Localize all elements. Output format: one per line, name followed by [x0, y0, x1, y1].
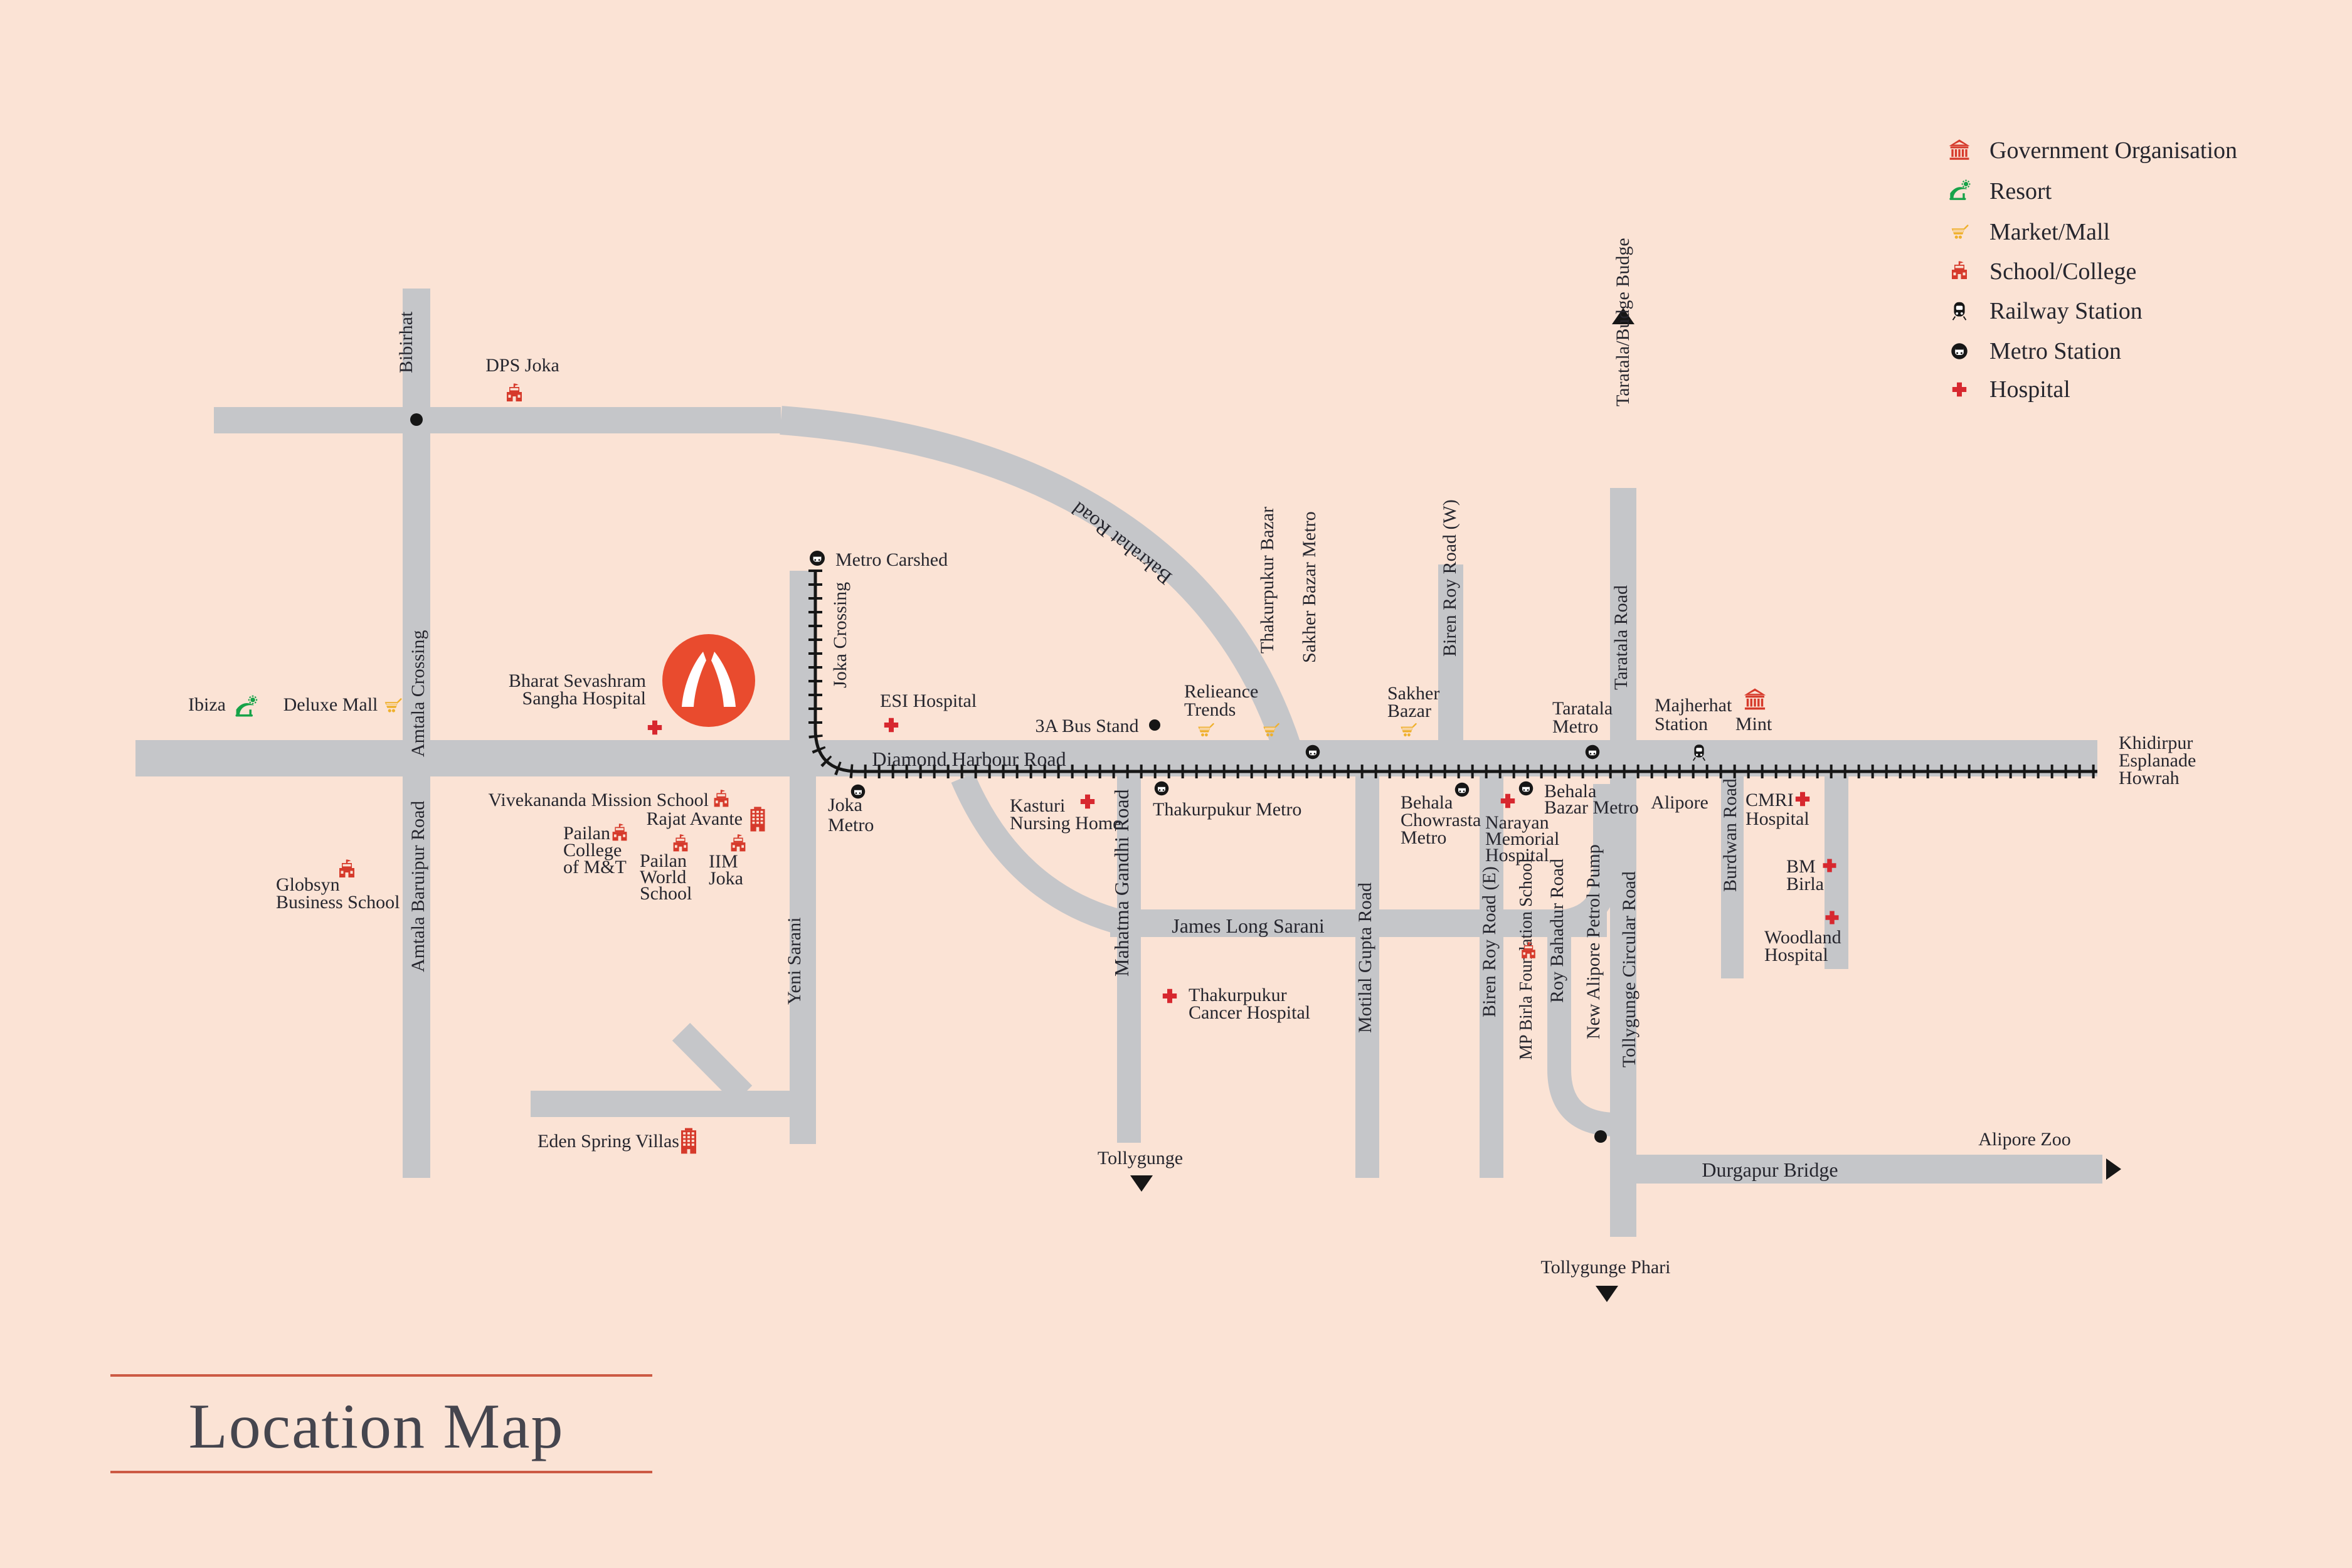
label-line: Cancer Hospital [1189, 1002, 1310, 1023]
label-line: Alipore Zoo [1978, 1129, 2070, 1150]
label-line: Vivekananda Mission School [489, 790, 709, 810]
metro-station-icon [1586, 745, 1600, 760]
label-line: Trends [1184, 699, 1236, 720]
label-thakurpukur-metro: Thakurpukur Metro [1153, 799, 1301, 820]
label-line: Metro [1552, 716, 1598, 737]
label-sakher-bazar-metro: Sakher Bazar Metro [1299, 511, 1320, 663]
label-new-alipore: New Alipore Petrol Pump [1583, 844, 1604, 1039]
label-line: Biren Roy Road (E) [1479, 866, 1500, 1017]
label-line: Metro [828, 815, 874, 835]
label-dhr: Diamond Harbour Road [872, 748, 1066, 770]
label-rajat: Rajat Avante [646, 808, 743, 829]
label-line: Birla [1786, 874, 1824, 894]
label-line: Deluxe Mall [283, 694, 378, 715]
label-joka-crossing: Joka Crossing [830, 582, 850, 688]
label-line: Ibiza [188, 694, 226, 715]
label-mp-birla: MP Birla Foundation School [1517, 858, 1536, 1060]
label-line: Burdwan Road [1720, 778, 1740, 892]
label-james-long: James Long Sarani [1172, 914, 1325, 937]
label-line: Metro [1401, 827, 1446, 848]
label-line: MP Birla Foundation School [1517, 858, 1536, 1060]
label-line: Joka [709, 868, 743, 889]
label-dps-joka: DPS Joka [485, 355, 559, 376]
label-line: Roy Bahadur Road [1547, 859, 1567, 1003]
building-icon [681, 1128, 696, 1154]
label-line: Hospital [1764, 945, 1828, 965]
metro-station-icon [851, 785, 866, 799]
metro-station-icon [1455, 783, 1470, 797]
label-line: Tollygunge Circular Road [1619, 871, 1640, 1067]
label-alipore-zoo: Alipore Zoo [1978, 1129, 2070, 1150]
label-tollygunge-circular: Tollygunge Circular Road [1619, 871, 1640, 1067]
project-logo [662, 634, 755, 727]
label-line: 3A Bus Stand [1035, 716, 1138, 736]
label-line: Mint [1735, 714, 1772, 734]
label-bharat: Bharat SevashramSangha Hospital [509, 670, 646, 709]
legend-item-label: Railway Station [1989, 298, 2143, 324]
label-line: Bazar Metro [1544, 797, 1639, 818]
label-esi: ESI Hospital [880, 691, 977, 711]
label-line: Amtala Baruipur Road [408, 801, 428, 972]
legend-item-label: Government Organisation [1989, 137, 2237, 164]
label-line: Business School [276, 892, 400, 913]
bibirhat-junction-dot [410, 413, 423, 426]
petrol-pump-dot [1594, 1130, 1607, 1143]
metro-station-icon [1155, 781, 1169, 796]
label-line: Diamond Harbour Road [872, 748, 1066, 770]
label-yeni: Yeni Sarani [784, 918, 805, 1005]
label-mahatma: Mahatma Gandhi Road [1110, 789, 1133, 977]
label-line: Mahatma Gandhi Road [1110, 789, 1133, 977]
label-line: Alipore [1651, 792, 1708, 813]
label-alipore: Alipore [1651, 792, 1708, 813]
label-line: Thakurpukur Bazar [1257, 507, 1278, 654]
label-taratala-budge: Taratala/Budge Budge [1613, 238, 1633, 406]
label-line: Biren Roy Road (W) [1439, 499, 1460, 657]
label-line: Thakurpukur Metro [1153, 799, 1301, 820]
legend-item-label: School/College [1989, 258, 2136, 285]
label-burdwan: Burdwan Road [1720, 778, 1740, 892]
label-line: New Alipore Petrol Pump [1583, 844, 1604, 1039]
legend-item-label: Metro Station [1989, 338, 2121, 364]
label-biren-e: Biren Roy Road (E) [1479, 866, 1500, 1017]
label-mint: Mint [1735, 714, 1772, 734]
label-eden: Eden Spring Villas [538, 1131, 679, 1152]
label-line: Sakher Bazar Metro [1299, 511, 1320, 663]
label-line: James Long Sarani [1172, 914, 1325, 937]
location-map-poster: BibirhatDPS JokaAmtala CrossingAmtala Ba… [0, 0, 2352, 1568]
metro-station-icon [1951, 343, 1968, 359]
label-line: Yeni Sarani [784, 918, 805, 1005]
label-motilal: Motilal Gupta Road [1355, 882, 1375, 1033]
label-thakurpukur-bazar: Thakurpukur Bazar [1257, 507, 1278, 654]
label-line: DPS Joka [485, 355, 559, 376]
label-line: School [640, 883, 692, 904]
label-biren-w: Biren Roy Road (W) [1439, 499, 1460, 657]
label-line: ESI Hospital [880, 691, 977, 711]
label-taratala-road: Taratala Road [1611, 585, 1631, 690]
metro-station-icon [1306, 745, 1320, 760]
label-line: Amtala Crossing [408, 630, 428, 758]
legend-item-label: Hospital [1989, 376, 2070, 403]
building-icon [751, 807, 765, 831]
legend-item-label: Resort [1989, 178, 2052, 204]
label-metro-carshed: Metro Carshed [835, 549, 948, 570]
metro-station-icon [810, 551, 825, 566]
label-line: Tollygunge Phari [1540, 1257, 1670, 1278]
label-line: Taratala/Budge Budge [1613, 238, 1633, 406]
label-line: Taratala Road [1611, 585, 1631, 690]
bus-stand-dot [1149, 719, 1160, 731]
label-line: Bazar [1387, 701, 1431, 721]
label-line: Tollygunge [1098, 1148, 1183, 1168]
label-amtala-baruipur: Amtala Baruipur Road [408, 801, 428, 972]
label-line: Bibirhat [396, 311, 416, 373]
label-vivekananda: Vivekananda Mission School [489, 790, 709, 810]
label-line: Station [1655, 714, 1708, 734]
label-tollygunge-phari: Tollygunge Phari [1540, 1257, 1670, 1278]
label-amtala-crossing: Amtala Crossing [408, 630, 428, 758]
label-roy-bahadur: Roy Bahadur Road [1547, 859, 1567, 1003]
label-durgapur: Durgapur Bridge [1702, 1158, 1838, 1181]
metro-station-icon [1519, 781, 1534, 796]
page-title: Location Map [189, 1391, 564, 1462]
label-line: Durgapur Bridge [1702, 1158, 1838, 1181]
label-narayan: NarayanMemorialHospital [1485, 812, 1559, 866]
label-line: Nursing Home [1010, 813, 1121, 834]
legend-item-label: Market/Mall [1989, 219, 2110, 245]
label-line: Majherhat [1655, 695, 1732, 716]
label-line: Motilal Gupta Road [1355, 882, 1375, 1033]
label-line: Sangha Hospital [522, 688, 646, 709]
label-bibirhat: Bibirhat [396, 311, 416, 373]
label-tollygunge-s: Tollygunge [1098, 1148, 1183, 1168]
label-line: Metro Carshed [835, 549, 948, 570]
label-deluxe-mall: Deluxe Mall [283, 694, 378, 715]
label-line: Eden Spring Villas [538, 1131, 679, 1152]
label-line: Joka Crossing [830, 582, 850, 688]
label-bus-stand: 3A Bus Stand [1035, 716, 1138, 736]
label-line: CMRI [1745, 790, 1794, 810]
label-pailan-world: PailanWorldSchool [640, 850, 692, 904]
label-ibiza: Ibiza [188, 694, 226, 715]
label-line: Hospital [1745, 808, 1809, 829]
label-line: Howrah [2119, 768, 2180, 788]
label-line: of M&T [563, 857, 627, 877]
label-line: Rajat Avante [646, 808, 743, 829]
